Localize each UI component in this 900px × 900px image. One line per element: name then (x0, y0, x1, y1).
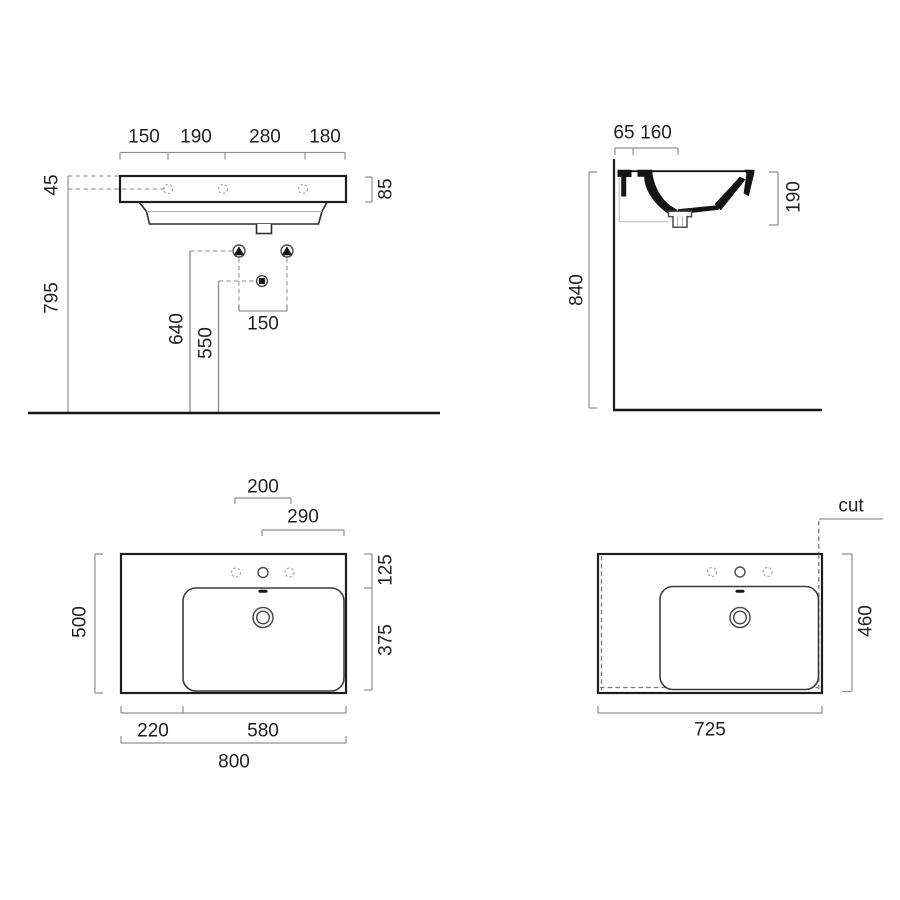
overflow-slot-icon (736, 590, 745, 593)
dim-label: 290 (287, 508, 319, 527)
depth-dim-chain (615, 148, 678, 155)
drawing-sheet: 150 190 280 180 45 795 85 640 550 150 65… (0, 0, 900, 900)
basin-depth-bracket (769, 172, 778, 225)
overflow-slot-icon (259, 590, 268, 593)
dim-label: 65 (613, 124, 634, 143)
dim-label: 550 (197, 327, 216, 359)
dim-label: 190 (785, 181, 804, 213)
drain-fitting-outline (669, 211, 692, 227)
dim-label: 840 (568, 274, 587, 306)
dim-label: 500 (71, 606, 90, 638)
cut-label: cut (838, 497, 863, 516)
plan-view-cut (598, 519, 883, 713)
dim-label: 725 (694, 721, 726, 740)
dim-label: 800 (218, 753, 250, 772)
dim-label: 640 (168, 313, 187, 345)
dim-label: 190 (180, 128, 212, 147)
mount-point-symbol (233, 245, 245, 257)
width-split-dim (121, 706, 346, 713)
basin-cross-section (618, 170, 755, 227)
dim-label: 200 (247, 478, 279, 497)
dim-label: 220 (137, 722, 169, 741)
drain-icon (734, 611, 747, 624)
dim-label: 795 (43, 282, 62, 314)
dim-label: 375 (377, 624, 396, 656)
drain-icon (257, 611, 270, 624)
depth-split-bracket (364, 554, 372, 690)
dim-label: 180 (309, 128, 341, 147)
dim-label: 85 (377, 178, 396, 199)
faucet-hole-icon (258, 568, 268, 578)
bowl-offset-bracket (262, 530, 344, 536)
basin-bowl-outline (139, 202, 327, 224)
width-dim-chain (120, 153, 345, 160)
drain-point-symbol (257, 276, 268, 287)
hole-offset-bracket (235, 498, 291, 504)
dim-label: 280 (249, 128, 281, 147)
cut-width-dim (598, 706, 822, 713)
plan-view-full (95, 498, 372, 743)
dim-label: 125 (377, 554, 396, 586)
dim-label: 160 (640, 124, 672, 143)
rim-thickness-bracket (365, 177, 372, 202)
dim-label: 460 (857, 605, 876, 637)
dim-label: 150 (247, 315, 279, 334)
dim-label: 45 (43, 174, 62, 195)
depth-bracket (95, 554, 103, 693)
mount-spacing-dim (239, 306, 287, 312)
dim-label: 150 (128, 128, 160, 147)
total-height-bracket (589, 172, 597, 408)
bowl-plan-outline (183, 588, 344, 691)
faucet-hole-icon (735, 567, 745, 577)
bowl-plan-outline (660, 587, 819, 690)
dim-label: 580 (247, 722, 279, 741)
drain-stub-outline (257, 224, 272, 234)
cut-depth-bracket (842, 554, 852, 692)
mount-point-symbol (281, 245, 293, 257)
